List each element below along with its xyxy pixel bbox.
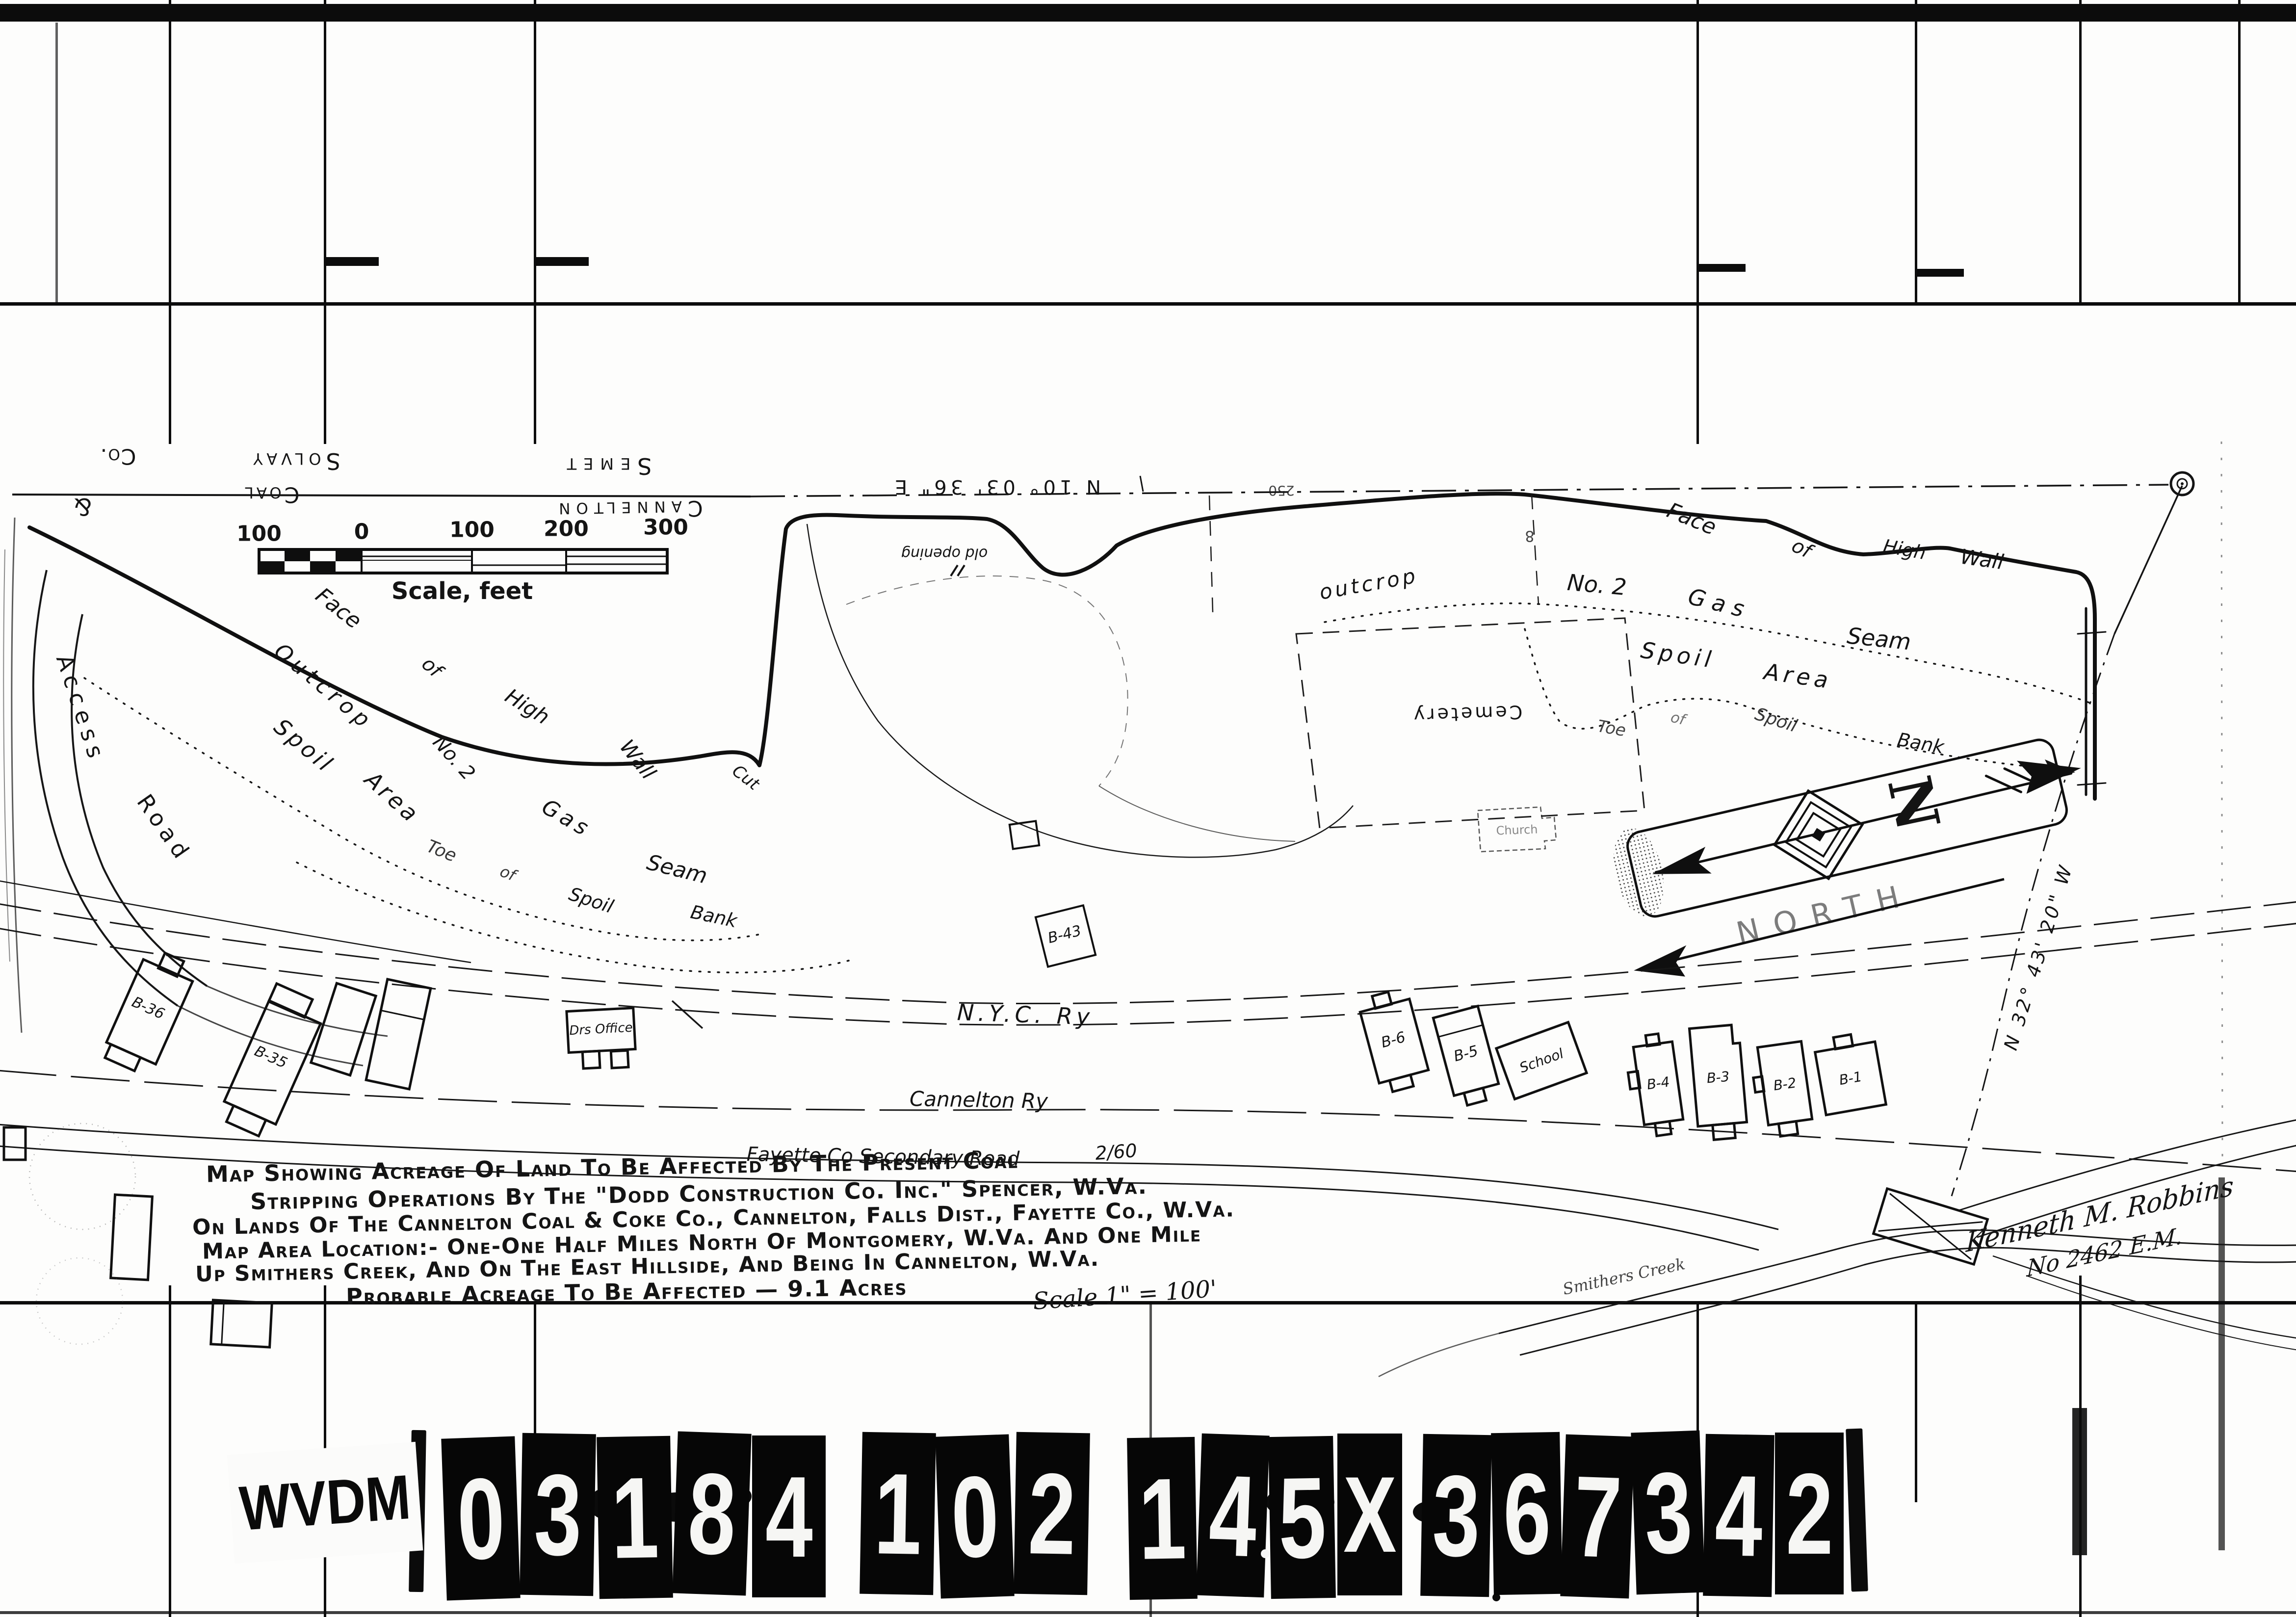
old-opening-label: old opening [901,545,988,562]
property-boundary [12,472,2193,496]
id-tile: 7 [1560,1434,1634,1599]
scale-caption: Scale, feet [391,577,533,605]
building-drs-office [567,1008,636,1070]
old-opening-symbol [951,565,965,576]
seal-ghost-1 [29,1123,135,1229]
building-unlabeled-4 [211,1300,272,1347]
fayette-road-num-label: 2/60 [1095,1140,1138,1164]
id-tile: 3 [1420,1434,1492,1597]
id-tile: 3 [1631,1431,1705,1595]
decimal-dot [1261,1549,1270,1558]
id-tile: 6 [1491,1432,1563,1595]
microfilm-map-sheet: Semet Solvay Co. Cannelton Coal & N 10° … [0,0,2296,1617]
nyc-track-2 [0,923,2296,1025]
scale-tick-300: 300 [643,515,688,540]
agency-card-text: WVDM [237,1461,413,1545]
id-tile: 1 [860,1432,936,1595]
owner-label-coal: Coal [242,482,299,507]
id-tile: 0 [441,1436,520,1600]
scale-tick-100l: 100 [236,522,282,547]
b2-label: B-2 [1773,1074,1798,1094]
id-tile: 0 [935,1434,1014,1598]
owner-label-semet: Semet [560,453,652,479]
building-unlabeled-3 [111,1195,153,1280]
scale-tick-100r: 100 [449,518,495,543]
building-unlabeled-5 [4,1127,26,1160]
id-tile: 8 [672,1431,751,1595]
id-tile: X [1337,1434,1402,1595]
id-tile: 4 [1196,1434,1269,1598]
cemetery-outline [1296,618,1644,852]
id-tile: 4 [752,1435,826,1597]
agency-card: WVDM [227,1442,423,1564]
owner-label-co: Co. [99,444,136,469]
strip-separator-right [1846,1429,1868,1592]
id-tile: 2 [1014,1432,1090,1595]
id-tile: 1 [597,1436,673,1599]
station-8-label: 8 [1525,527,1534,545]
cannelton-ry-label: Cannelton Ry [910,1087,1048,1113]
cannelton-track [0,1070,2296,1172]
owner-label-amp: & [73,493,92,520]
film-scratch-line [2221,442,2222,1168]
map-linework [0,0,2296,1617]
outcrop-right-2: No. 2 [1566,569,1627,600]
north-arrow-shading [1606,823,1672,922]
scale-bar [259,549,667,573]
b3-label: B-3 [1706,1069,1730,1087]
bearing-top-label: N 10° 03' 36" E [891,475,1101,498]
b4-label: B-4 [1646,1073,1671,1093]
id-tile: 4 [1703,1434,1774,1597]
id-tile: 5 [1268,1436,1336,1599]
film-id-strip: WVDM 0 3 1 8 4 1 0 2 1 4 5 X 3 6 7 3 4 2 [0,1418,2296,1609]
high-wall-line [29,494,2106,799]
scale-tick-200: 200 [544,517,589,542]
id-tile: 2 [1775,1433,1844,1594]
scale-tick-0: 0 [354,520,369,545]
id-tile: 3 [520,1433,596,1596]
id-tile: 1 [1127,1437,1198,1600]
cemetery-label: Cemetery [1411,701,1523,727]
nyc-track-1 [0,902,2296,1004]
church-label: Church [1496,823,1538,838]
nyc-ry-label: N.Y.C. Ry [957,999,1094,1030]
owner-label-solvay: Solvay [248,448,340,474]
film-frame-marks [0,0,2296,1617]
station-250-label: 250 [1268,483,1294,499]
